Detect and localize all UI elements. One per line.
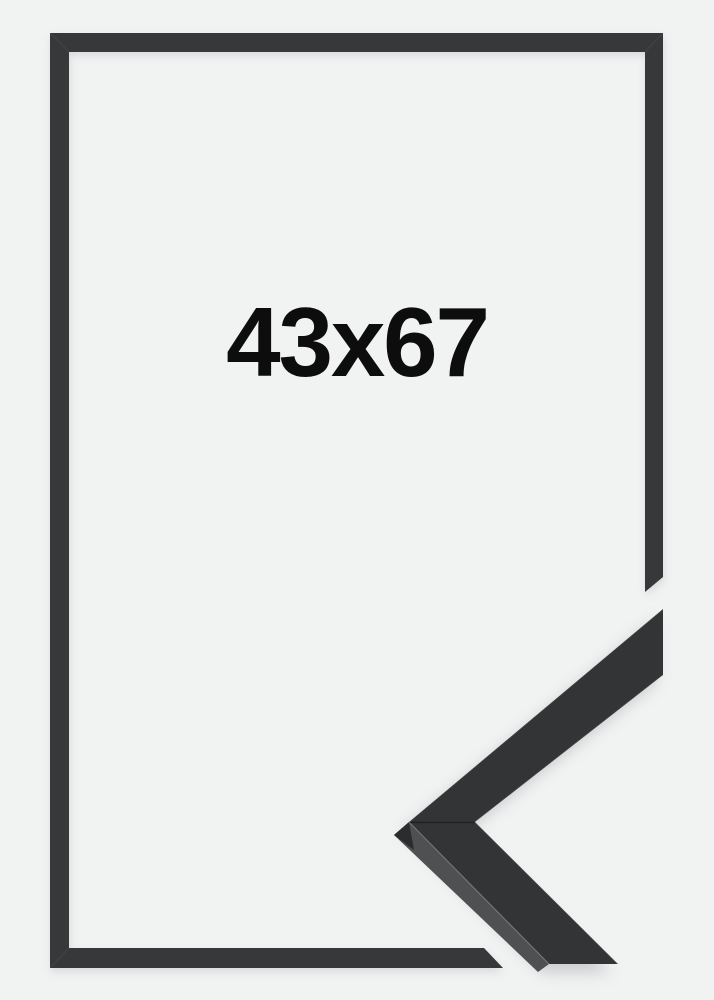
- frame-top-bar: [50, 33, 663, 52]
- frame-right-bar: [645, 33, 663, 592]
- product-photo-stage: 43x67: [0, 0, 714, 1000]
- frame-bottom-bar: [50, 948, 503, 968]
- frame-product-illustration: [0, 0, 714, 1000]
- background: [0, 0, 714, 1000]
- frame-left-bar: [50, 33, 69, 968]
